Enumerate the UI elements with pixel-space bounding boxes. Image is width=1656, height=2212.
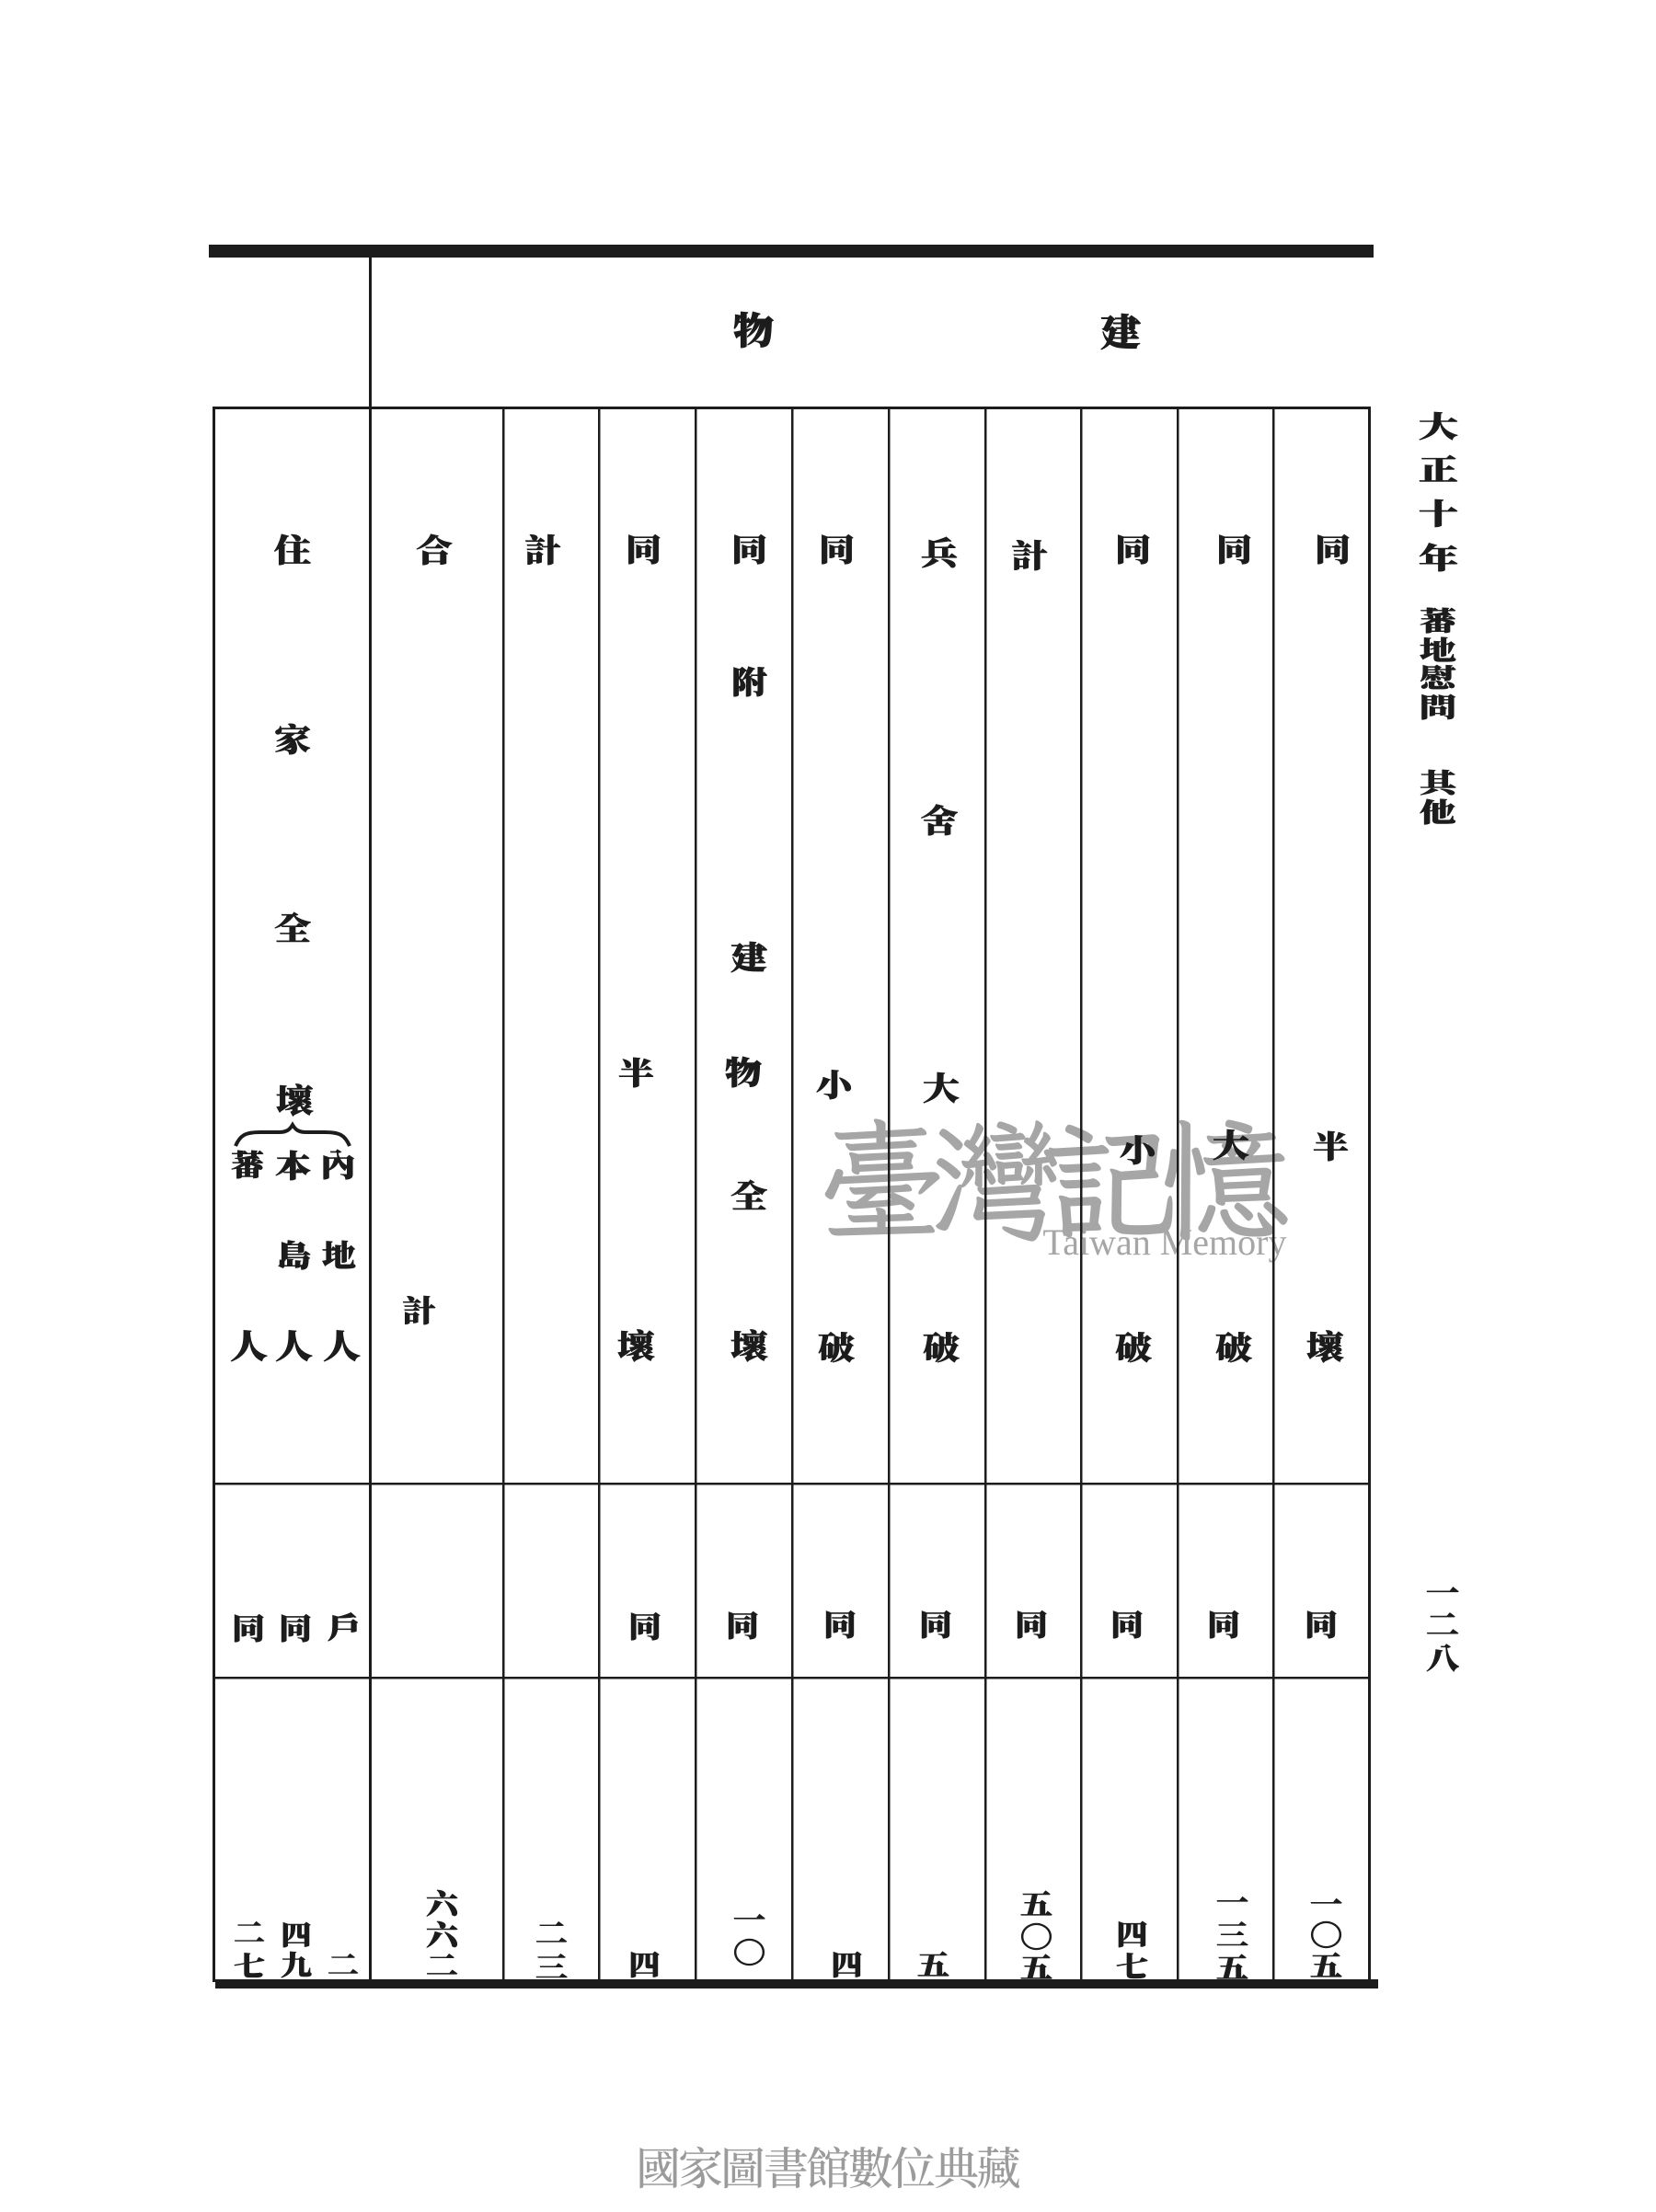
- svg-text:Taiwan Memory: Taiwan Memory: [1043, 1221, 1287, 1263]
